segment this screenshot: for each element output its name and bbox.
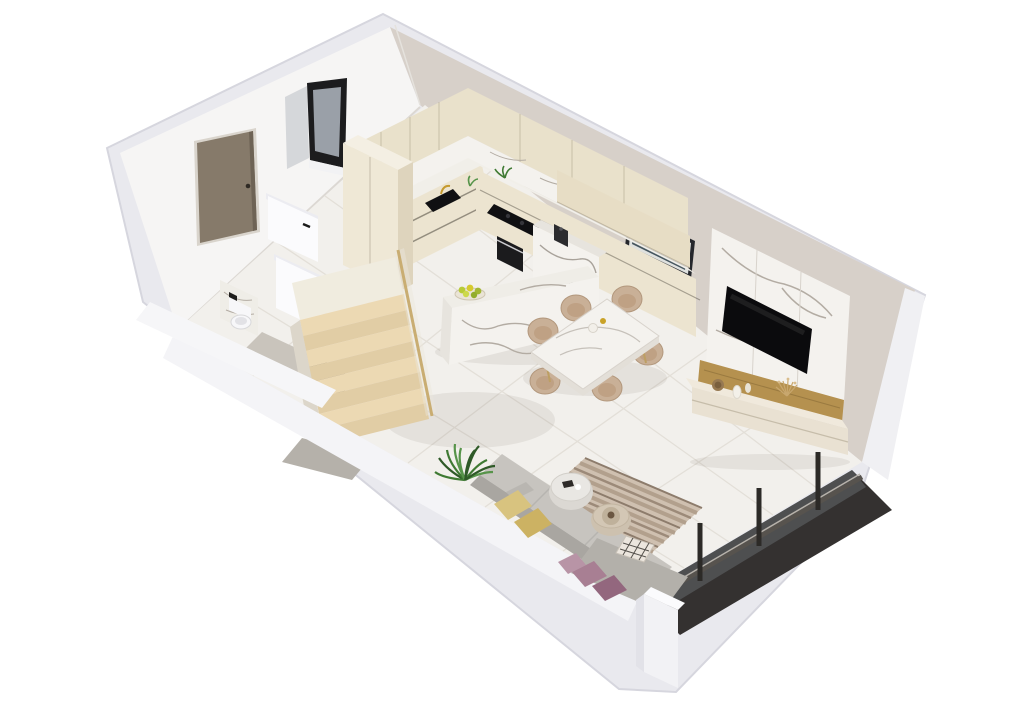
coffee-machine-dial bbox=[559, 227, 563, 231]
marble-pouf bbox=[549, 473, 593, 510]
apartment-3d-render bbox=[0, 0, 1024, 717]
apartment-render-canvas bbox=[0, 0, 1024, 717]
round-wicker-decor-center bbox=[715, 382, 722, 389]
door-handle bbox=[246, 184, 251, 189]
column-side bbox=[636, 594, 644, 672]
toilet-seat bbox=[235, 317, 247, 325]
decor-vase bbox=[733, 386, 741, 399]
decor-vase bbox=[745, 383, 751, 393]
burner bbox=[520, 221, 524, 225]
window-glass bbox=[313, 87, 341, 157]
beige-pouf bbox=[591, 504, 631, 536]
pouf-decor-book bbox=[575, 484, 581, 490]
column-front bbox=[644, 594, 678, 688]
pouf-tray-item bbox=[608, 512, 615, 519]
burner bbox=[506, 214, 510, 218]
console-shadow bbox=[690, 454, 850, 470]
table-bowl bbox=[589, 324, 598, 333]
table-gold-decor bbox=[600, 318, 606, 324]
window-side-panel bbox=[285, 86, 309, 169]
